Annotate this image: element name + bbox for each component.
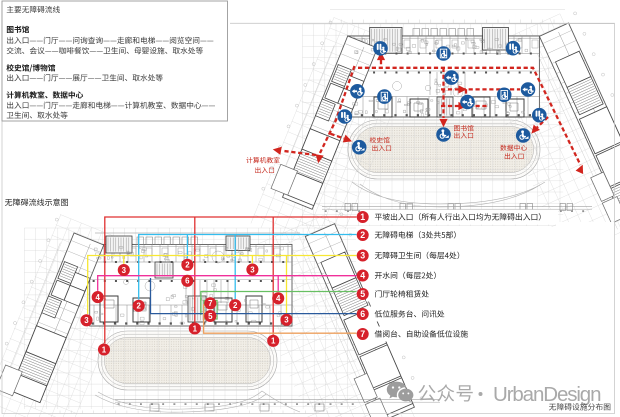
svg-text:2: 2 — [360, 230, 365, 240]
svg-text:UrbanDesign: UrbanDesign — [493, 383, 602, 406]
svg-text:6: 6 — [360, 309, 365, 319]
svg-text:3: 3 — [284, 316, 289, 325]
svg-text:4: 4 — [360, 271, 365, 281]
svg-text:5: 5 — [360, 289, 365, 299]
svg-text:1: 1 — [271, 337, 276, 346]
svg-text:7: 7 — [208, 299, 213, 308]
svg-text:3: 3 — [122, 266, 127, 275]
svg-text:6: 6 — [185, 277, 190, 286]
svg-text:1: 1 — [360, 212, 365, 222]
svg-text:1: 1 — [193, 324, 198, 333]
svg-text:2: 2 — [185, 261, 190, 270]
svg-text:3: 3 — [84, 316, 89, 325]
svg-text:2: 2 — [137, 302, 142, 311]
svg-text:3: 3 — [250, 265, 255, 274]
svg-text:5: 5 — [208, 312, 213, 321]
svg-text:3: 3 — [360, 251, 365, 261]
svg-text:2: 2 — [233, 301, 238, 310]
svg-text:1: 1 — [102, 345, 107, 354]
svg-text:4: 4 — [96, 293, 101, 302]
svg-text:4: 4 — [276, 294, 281, 303]
svg-text:7: 7 — [360, 329, 365, 339]
